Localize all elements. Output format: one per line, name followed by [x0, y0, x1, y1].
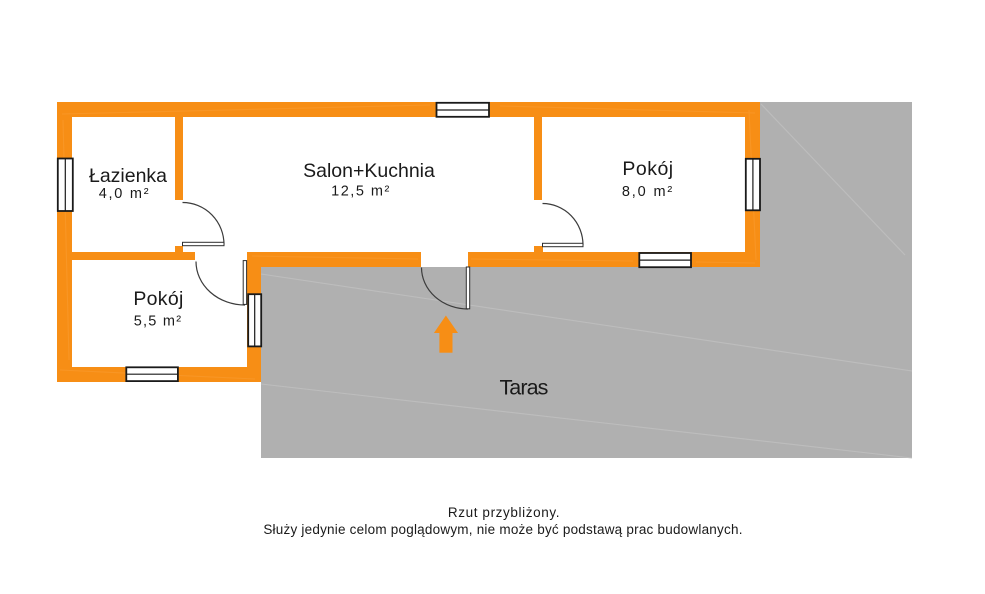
svg-text:5,5 m²: 5,5 m² — [134, 314, 183, 330]
svg-text:Salon+Kuchnia: Salon+Kuchnia — [303, 160, 435, 182]
svg-text:4,0 m²: 4,0 m² — [99, 186, 151, 202]
svg-text:Łazienka: Łazienka — [89, 165, 167, 187]
svg-text:12,5 m²: 12,5 m² — [331, 184, 391, 200]
svg-text:Służy jedynie celom poglądowym: Służy jedynie celom poglądowym, nie może… — [263, 522, 742, 537]
svg-text:Rzut przybliżony.: Rzut przybliżony. — [448, 505, 560, 520]
svg-text:Taras: Taras — [499, 376, 547, 400]
svg-text:Pokój: Pokój — [622, 158, 673, 180]
svg-text:Pokój: Pokój — [133, 288, 183, 310]
svg-text:8,0 m²: 8,0 m² — [622, 184, 674, 200]
